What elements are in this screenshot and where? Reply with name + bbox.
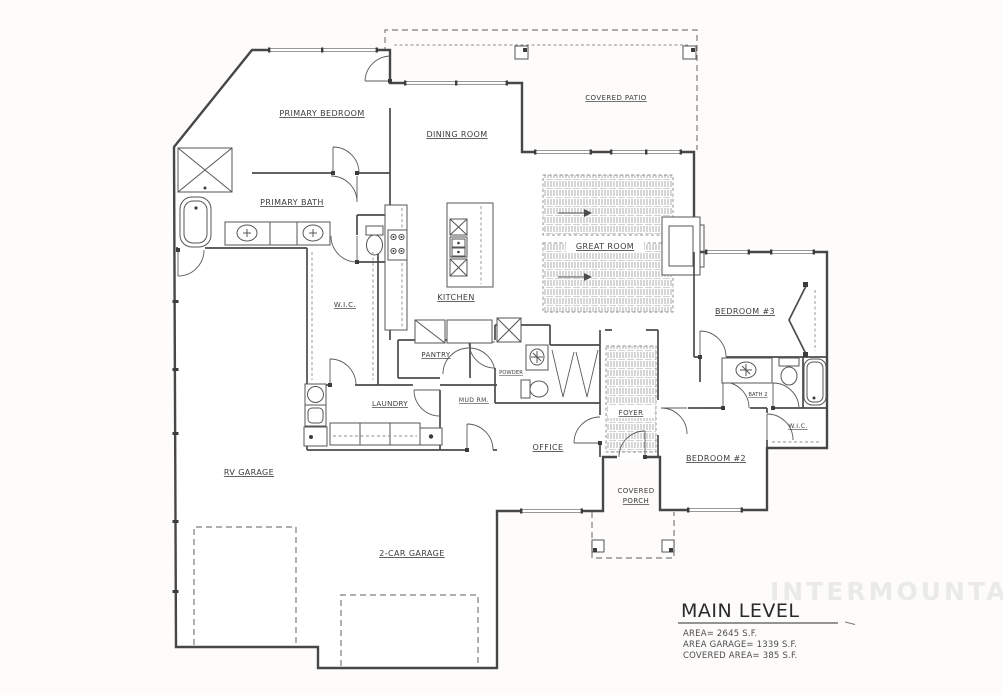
double-vanity (225, 222, 330, 245)
utility-sink (304, 427, 327, 446)
label-foyer: FOYER (619, 409, 644, 417)
label-dining-room: DINING ROOM (426, 130, 487, 139)
label-great-room: GREAT ROOM (576, 242, 634, 251)
floor-plan-sheet: COVERED PATIO GREAT ROOM FOYER (0, 0, 1003, 695)
floor-plan-drawing: COVERED PATIO GREAT ROOM FOYER (0, 0, 1003, 695)
kitchen-island (447, 203, 493, 287)
watermark: INTERMOUNTAIN (770, 577, 1003, 606)
bath2-tub (804, 359, 826, 405)
bathtub (180, 197, 211, 247)
fireplace (662, 217, 704, 275)
label-2-car-garage: 2-CAR GARAGE (379, 549, 444, 558)
label-bath-2: BATH 2 (748, 392, 767, 398)
stat-area-garage: AREA GARAGE= 1339 S.F. (683, 640, 797, 650)
shower (178, 148, 232, 192)
label-wic-2: W.I.C. (788, 423, 807, 430)
label-primary-bath: PRIMARY BATH (260, 198, 324, 207)
covered-porch (592, 512, 674, 558)
foyer: FOYER (606, 346, 656, 452)
label-covered-patio: COVERED PATIO (585, 94, 647, 102)
toilet (366, 226, 383, 255)
label-rv-garage: RV GARAGE (224, 468, 274, 477)
label-wic-primary: W.I.C. (334, 301, 356, 309)
bath2-toilet (779, 358, 799, 385)
label-primary-bedroom: PRIMARY BEDROOM (279, 109, 364, 118)
title-block: MAIN LEVEL AREA= 2645 S.F. AREA GARAGE= … (678, 600, 855, 661)
powder-toilet (521, 380, 548, 398)
dryer (305, 405, 326, 426)
stat-covered-area: COVERED AREA= 385 S.F. (683, 651, 798, 661)
label-covered-porch-1: COVERED (618, 487, 655, 495)
label-pantry: PANTRY (421, 351, 450, 359)
label-mud-room: MUD RM. (459, 397, 489, 404)
label-bedroom-3: BEDROOM #3 (715, 307, 775, 316)
stat-area: AREA= 2645 S.F. (683, 629, 757, 639)
label-laundry: LAUNDRY (372, 400, 408, 408)
label-office: OFFICE (533, 443, 564, 452)
label-bedroom-2: BEDROOM #2 (686, 454, 746, 463)
label-kitchen: KITCHEN (437, 293, 474, 302)
range (388, 230, 407, 260)
washer (305, 384, 326, 405)
label-covered-porch-2: PORCH (623, 497, 649, 505)
plan-title: MAIN LEVEL (681, 600, 799, 622)
label-powder: POWDER (499, 370, 523, 376)
